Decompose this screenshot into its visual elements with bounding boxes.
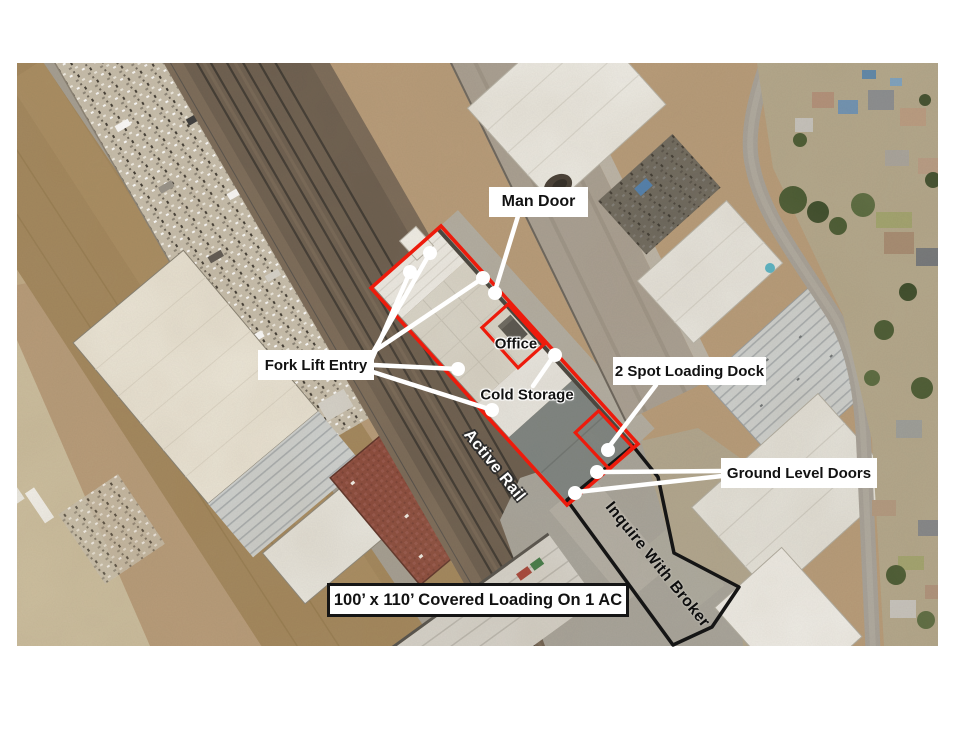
man-door-label: Man Door — [489, 187, 588, 217]
cold-storage-label: Cold Storage — [480, 387, 573, 404]
flyer-page: Man Door Fork Lift Entry 2 Spot Loading … — [0, 0, 960, 742]
ground-level-doors-label: Ground Level Doors — [721, 458, 877, 488]
satellite-photo — [0, 0, 960, 742]
loading-dock-label: 2 Spot Loading Dock — [613, 357, 766, 385]
covered-loading-label: 100’ x 110’ Covered Loading On 1 AC — [327, 583, 629, 617]
fork-lift-entry-label: Fork Lift Entry — [258, 350, 374, 380]
office-label: Office — [495, 336, 538, 353]
